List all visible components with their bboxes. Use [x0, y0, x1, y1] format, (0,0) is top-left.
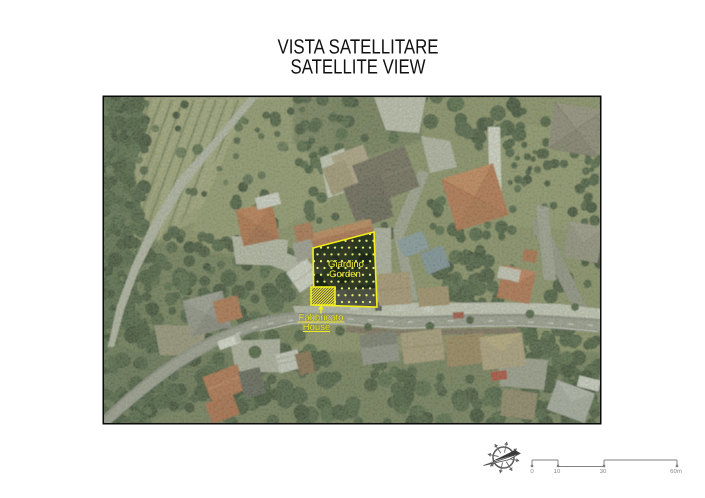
svg-text:60m: 60m: [670, 468, 682, 475]
svg-text:Gorden: Gorden: [329, 269, 361, 280]
svg-text:10: 10: [554, 468, 561, 475]
svg-text:SATELLITE VIEW: SATELLITE VIEW: [291, 56, 427, 79]
svg-text:30: 30: [600, 468, 607, 475]
